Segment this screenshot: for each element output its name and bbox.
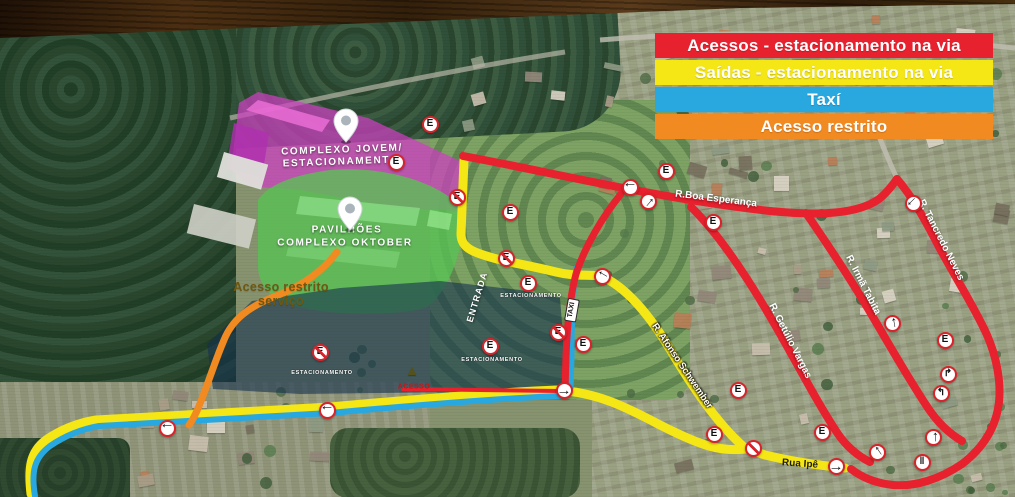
slash-mark — [499, 251, 514, 266]
no-parking-e-sign: E — [449, 189, 466, 206]
direction-arrow-sign: → — [905, 195, 922, 212]
no-parking-e-sign: E — [550, 324, 567, 341]
turn-right-arrow-sign: ↱ — [940, 366, 957, 383]
map-label: serviço — [258, 294, 304, 308]
slash-mark — [551, 325, 566, 340]
no-parking-e-sign: E — [482, 338, 499, 355]
map-label: Acesso restrito — [233, 280, 329, 294]
no-parking-e-sign: E — [502, 204, 519, 221]
legend-item-saidas: Saídas - estacionamento na via — [655, 60, 993, 85]
map-label: ▲ — [405, 362, 419, 378]
no-parking-e-sign: E — [937, 332, 954, 349]
no-parking-e-sign: E — [388, 154, 405, 171]
direction-arrow-sign: → — [159, 420, 176, 437]
map-pin-icon — [336, 195, 364, 233]
direction-arrow-sign: → — [925, 429, 942, 446]
no-parking-slash-sign — [745, 440, 762, 457]
turn-left-arrow-sign: ↰ — [933, 385, 950, 402]
slash-mark — [746, 441, 761, 456]
lane-divider-sign: ‖ — [914, 454, 931, 471]
no-parking-e-sign: E — [422, 116, 439, 133]
map-label: ESTACIONAMENTO — [461, 357, 523, 363]
map-label: ESTACIONAMENTO — [291, 370, 353, 376]
no-parking-e-sign: E — [730, 382, 747, 399]
direction-arrow-sign: → — [884, 315, 901, 332]
direction-arrow-sign: → — [556, 382, 573, 399]
no-parking-e-sign: E — [575, 336, 592, 353]
map-label: COMPLEXO OKTOBER — [277, 238, 412, 249]
direction-arrow-sign: → — [828, 458, 845, 475]
direction-arrow-sign: → — [640, 193, 657, 210]
legend-item-taxi: Taxí — [655, 87, 993, 112]
direction-arrow-sign: → — [319, 402, 336, 419]
event-traffic-map: COMPLEXO JOVEM/ESTACIONAMENTOPAVILHÕESCO… — [0, 0, 1015, 497]
direction-arrow-sign: → — [622, 179, 639, 196]
slash-mark — [450, 190, 465, 205]
direction-arrow-sign: → — [869, 444, 886, 461]
legend-item-acessos: Acessos - estacionamento na via — [655, 33, 993, 58]
no-parking-e-sign: E — [705, 214, 722, 231]
legend: Acessos - estacionamento na viaSaídas - … — [655, 33, 993, 141]
map-label: ACESSO — [398, 384, 431, 391]
no-parking-e-sign: E — [312, 344, 329, 361]
direction-arrow-sign: → — [594, 268, 611, 285]
route-acessos — [463, 156, 897, 213]
warehouse-building — [187, 204, 256, 249]
no-parking-e-sign: E — [814, 424, 831, 441]
map-label: ESTACIONAMENTO — [500, 293, 562, 299]
no-parking-e-sign: E — [520, 275, 537, 292]
legend-item-restrito: Acesso restrito — [655, 114, 993, 139]
no-parking-e-sign: E — [706, 426, 723, 443]
no-parking-e-sign: E — [498, 250, 515, 267]
slash-mark — [313, 345, 328, 360]
no-parking-e-sign: E — [658, 163, 675, 180]
map-pin-icon — [332, 107, 360, 145]
